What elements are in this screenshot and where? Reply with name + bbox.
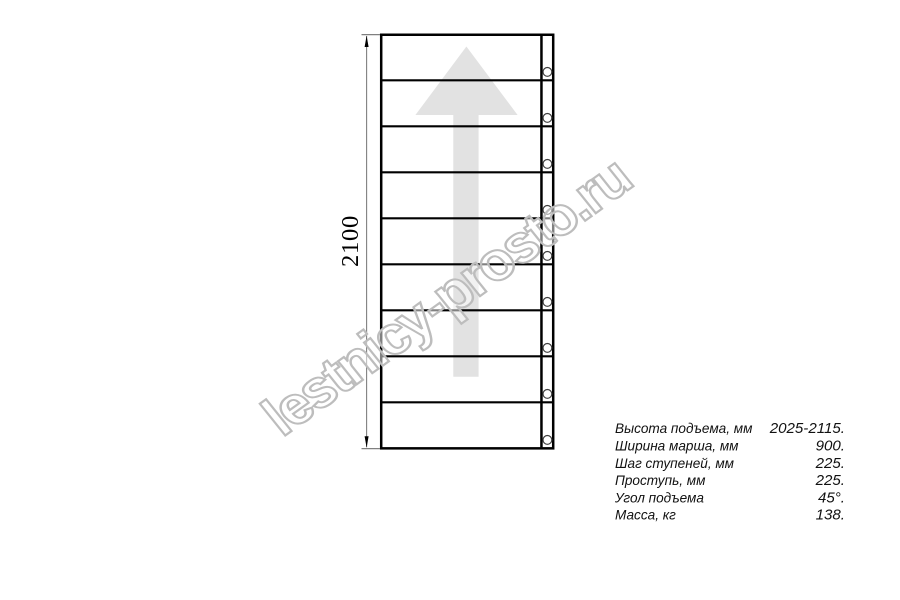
svg-text:Угол подъема: Угол подъема bbox=[614, 490, 704, 505]
svg-text:138.: 138. bbox=[816, 507, 845, 524]
svg-text:Проступь, мм: Проступь, мм bbox=[615, 473, 706, 488]
svg-text:45°.: 45°. bbox=[818, 489, 845, 506]
svg-text:Шаг ступеней, мм: Шаг ступеней, мм bbox=[615, 456, 735, 471]
svg-text:Ширина марша, мм: Ширина марша, мм bbox=[615, 439, 739, 454]
svg-text:2025-2115.: 2025-2115. bbox=[769, 420, 845, 437]
svg-text:225.: 225. bbox=[815, 455, 845, 472]
svg-text:Высота подъема, мм: Высота подъема, мм bbox=[615, 421, 753, 436]
svg-text:2100: 2100 bbox=[337, 215, 364, 267]
svg-text:225.: 225. bbox=[815, 472, 845, 489]
svg-text:Масса, кг: Масса, кг bbox=[615, 508, 676, 523]
svg-text:900.: 900. bbox=[816, 438, 845, 455]
svg-text:lestnicy-prosto.ru: lestnicy-prosto.ru bbox=[246, 150, 648, 445]
